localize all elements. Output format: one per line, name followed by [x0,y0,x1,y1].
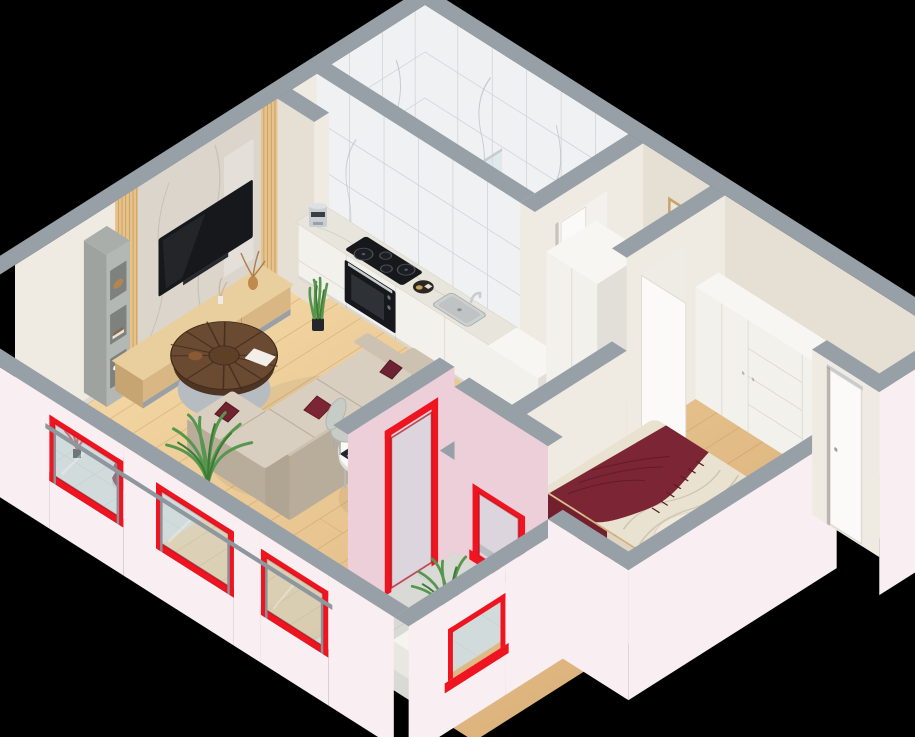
amber-vase [248,276,258,290]
door-gap [827,366,830,526]
coffee-machine [309,203,327,227]
balustrade-posts [321,601,323,655]
entrance-door-leaf [830,370,861,544]
isometric-apartment-scene [0,0,915,737]
shelf-unit-side [84,240,107,407]
red-balcony-door-frame [385,397,438,596]
floor-plan-render [0,0,915,737]
white-vase [218,296,223,304]
balcony-door-glass [391,409,431,591]
plant-pot [312,318,324,331]
